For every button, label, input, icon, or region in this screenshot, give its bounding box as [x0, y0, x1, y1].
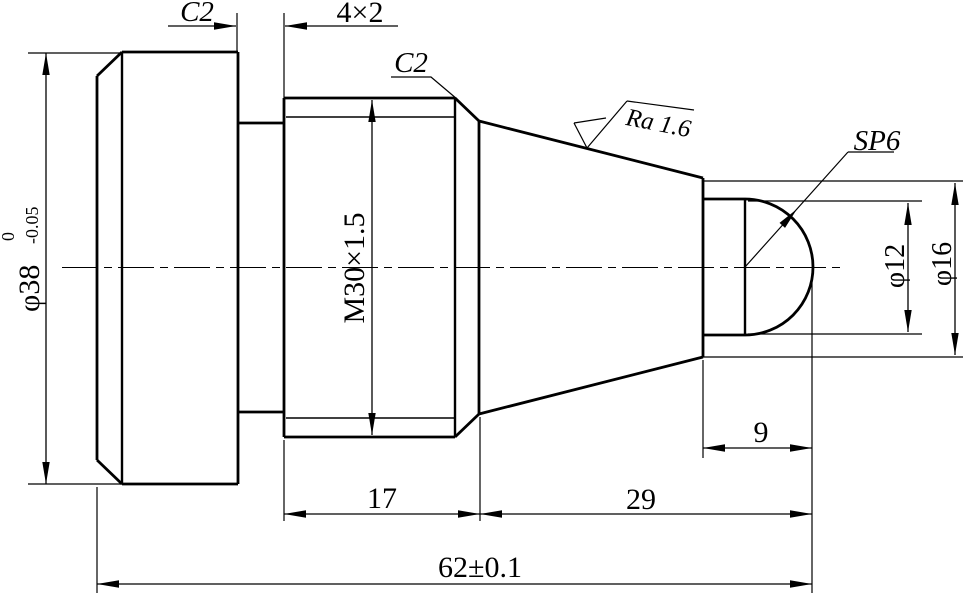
len17-label: 17 — [367, 482, 397, 515]
svg-text:φ16: φ16 — [927, 242, 958, 286]
svg-text:φ12: φ12 — [880, 244, 911, 288]
dia16-label: φ16 — [927, 242, 958, 286]
engineering-drawing-canvas: C2 4×2 C2 Ra 1.6 SP6 φ38 0 -0.05 M30×1.5… — [0, 0, 966, 599]
leader-lines — [391, 77, 894, 267]
extension-lines — [28, 13, 963, 593]
dia38-label: φ38 0 -0.05 — [0, 207, 46, 313]
thread-label: M30×1.5 — [338, 212, 371, 323]
len9-label: 9 — [754, 416, 769, 449]
len29-label: 29 — [626, 483, 656, 516]
shaft-part-drawing: C2 4×2 C2 Ra 1.6 SP6 φ38 0 -0.05 M30×1.5… — [0, 0, 966, 599]
dia12-label: φ12 — [880, 244, 911, 288]
leader-c2-thread — [391, 77, 457, 99]
dia38-tol-lower: -0.05 — [22, 207, 42, 245]
surface-roughness-label: Ra 1.6 — [623, 104, 694, 143]
dia38-value: φ38 — [13, 265, 46, 312]
len62-label: 62±0.1 — [438, 551, 522, 584]
chamfer-thread-label: C2 — [394, 47, 428, 79]
taper-bottom — [479, 357, 703, 414]
sphere-label: SP6 — [854, 125, 901, 157]
dimension-lines — [46, 26, 955, 584]
groove-label: 4×2 — [337, 0, 384, 29]
dia38-tol-upper: 0 — [0, 232, 18, 241]
svg-text:M30×1.5: M30×1.5 — [338, 212, 371, 323]
chamfer-flange-label: C2 — [180, 0, 214, 28]
